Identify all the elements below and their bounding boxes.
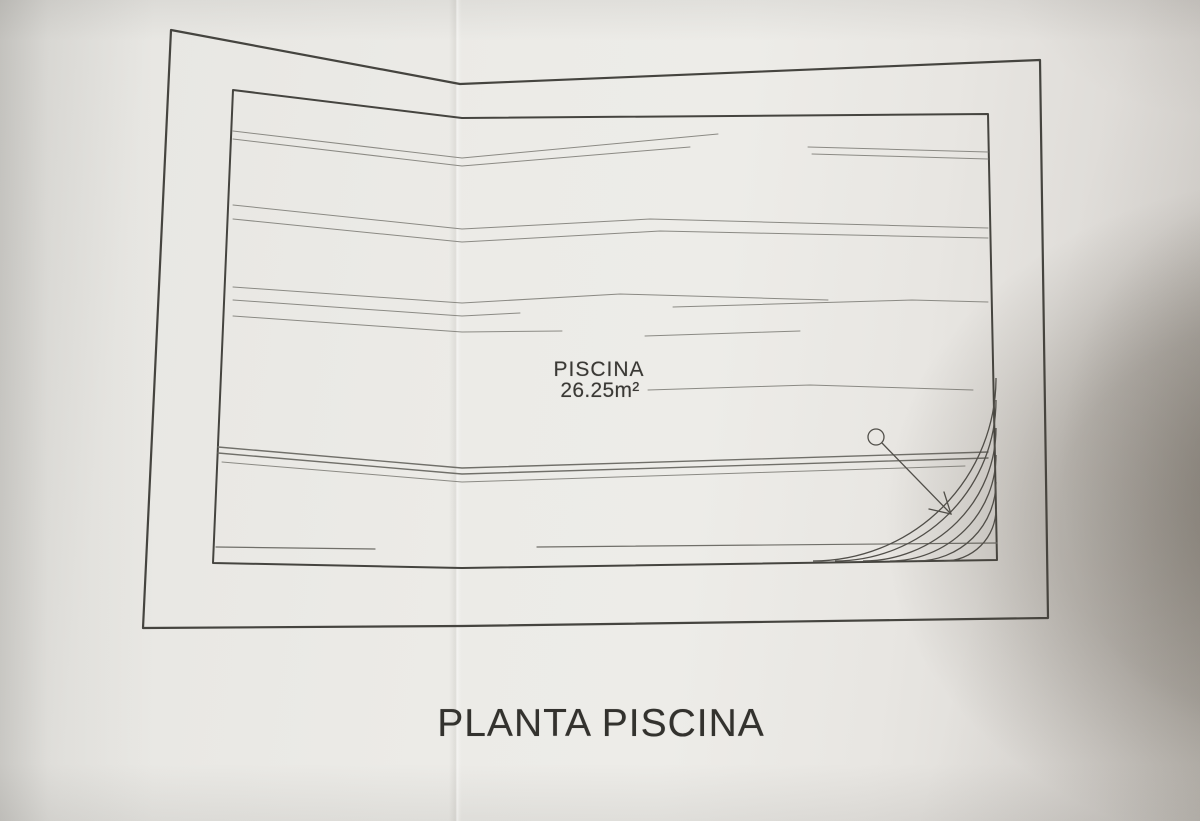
pool-plan-drawing bbox=[0, 0, 1200, 821]
water-line bbox=[233, 131, 718, 158]
water-line bbox=[233, 205, 988, 229]
photo-of-pool-plan-sheet: PISCINA 26.25m² PLANTA PISCINA bbox=[0, 0, 1200, 821]
water-line bbox=[808, 147, 988, 152]
pool-deck-outline bbox=[143, 30, 1048, 628]
stair-step-arc bbox=[863, 428, 996, 561]
stair-start-circle bbox=[868, 429, 884, 445]
water-line bbox=[648, 385, 973, 390]
water-line bbox=[233, 219, 988, 242]
pool-basin-outline bbox=[213, 90, 997, 568]
water-line bbox=[812, 154, 988, 159]
water-line bbox=[218, 447, 988, 468]
water-line bbox=[645, 331, 800, 336]
pool-area-value: 26.25m² bbox=[560, 379, 639, 403]
water-line bbox=[233, 287, 828, 303]
water-line bbox=[233, 316, 562, 332]
drawing-title: PLANTA PISCINA bbox=[437, 702, 765, 746]
water-line bbox=[222, 462, 965, 482]
stair-step-arc bbox=[835, 400, 996, 561]
water-line bbox=[216, 547, 375, 549]
stair-step-arc bbox=[917, 482, 996, 561]
water-line bbox=[673, 300, 988, 307]
